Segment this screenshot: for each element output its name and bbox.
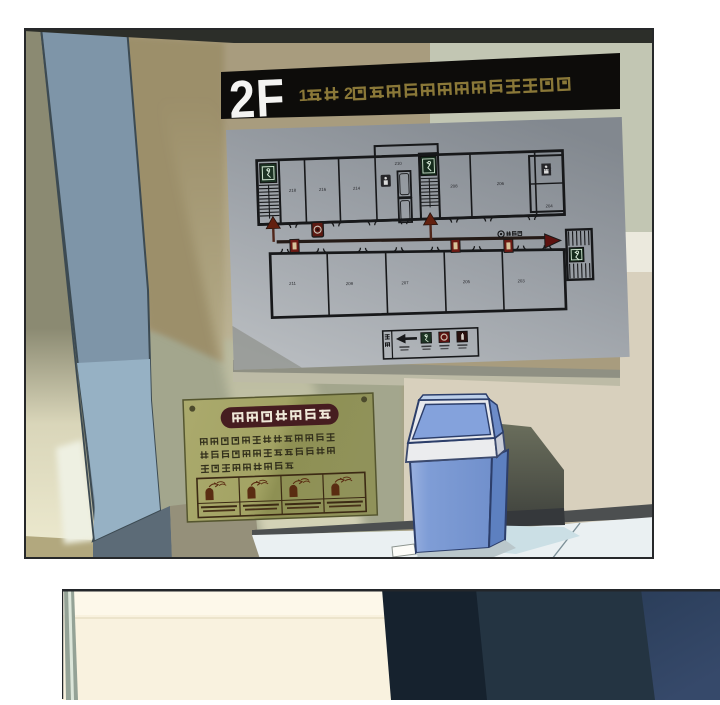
svg-text:208: 208 (450, 183, 458, 188)
svg-text:209: 209 (346, 281, 354, 286)
svg-text:2F: 2F (228, 68, 287, 130)
svg-text:207: 207 (401, 280, 409, 285)
svg-text:206: 206 (497, 181, 505, 186)
svg-text:211: 211 (289, 281, 297, 286)
svg-text:205: 205 (463, 279, 471, 284)
svg-text:204: 204 (545, 203, 553, 208)
svg-text:214: 214 (353, 186, 361, 191)
svg-text:2: 2 (344, 85, 354, 103)
svg-text:1: 1 (298, 87, 308, 105)
svg-text:210: 210 (395, 161, 403, 166)
svg-text:216: 216 (319, 187, 327, 192)
svg-text:202: 202 (544, 166, 552, 171)
svg-text:218: 218 (289, 188, 297, 193)
svg-text:203: 203 (518, 278, 526, 283)
